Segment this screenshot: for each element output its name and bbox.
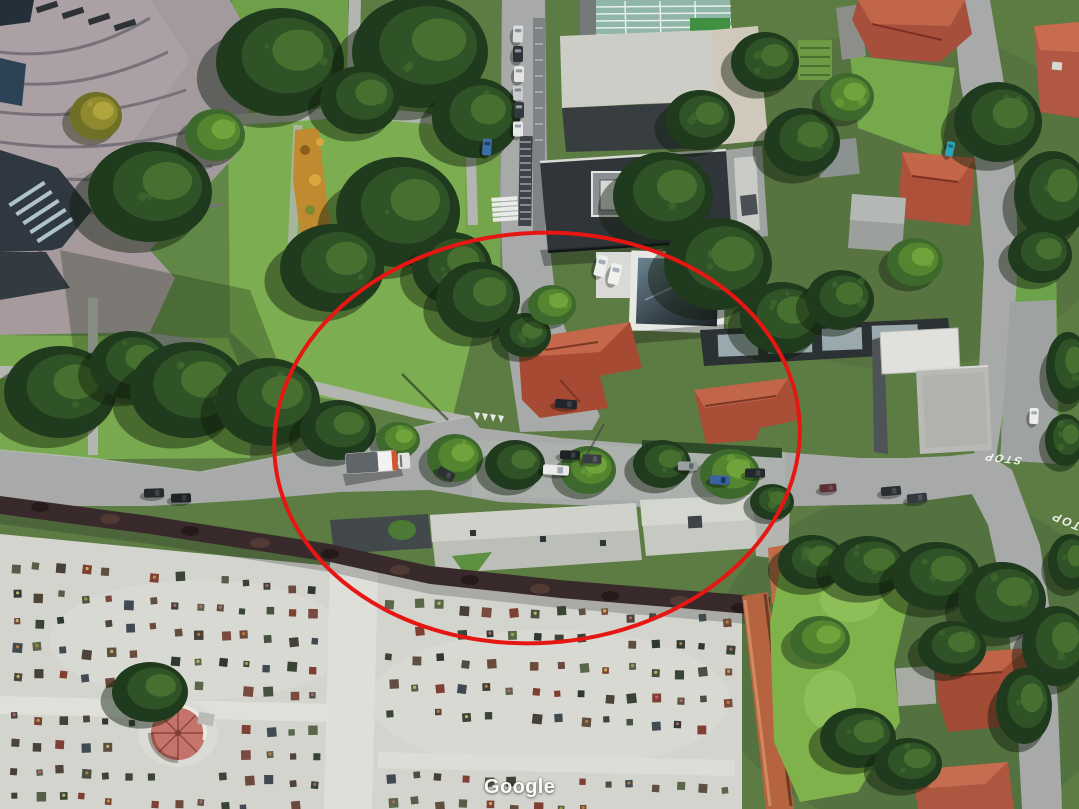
grave: [130, 650, 138, 658]
grave: [171, 602, 179, 610]
grave: [11, 739, 20, 748]
grave: [194, 631, 204, 641]
grave: [34, 717, 42, 725]
grave: [554, 690, 561, 697]
grave: [11, 793, 17, 799]
grave: [532, 714, 543, 725]
grave: [509, 608, 519, 618]
grave: [219, 658, 228, 667]
grave: [652, 721, 661, 730]
grave: [626, 693, 637, 704]
grave: [698, 614, 706, 622]
grave: [262, 665, 270, 673]
grave: [677, 782, 685, 790]
grave: [267, 607, 275, 615]
grave: [264, 635, 272, 643]
grave: [81, 650, 92, 661]
grave: [308, 586, 316, 594]
grave: [487, 800, 495, 808]
grave: [151, 801, 159, 809]
grave: [37, 792, 47, 802]
grave: [411, 684, 418, 691]
grave: [221, 576, 229, 584]
grave: [435, 709, 442, 716]
grave: [677, 698, 684, 705]
grave: [82, 596, 90, 604]
grave: [389, 679, 399, 689]
grave: [457, 684, 467, 694]
grave: [12, 564, 21, 573]
grave: [311, 781, 319, 789]
grave: [55, 765, 64, 774]
grave: [580, 663, 590, 673]
grave: [243, 661, 250, 668]
grave: [481, 607, 492, 618]
grave: [534, 633, 542, 641]
grave: [126, 624, 135, 633]
grave: [105, 798, 112, 805]
grave: [59, 671, 67, 679]
grave: [459, 606, 469, 616]
facade-strip: [533, 18, 545, 233]
grave: [291, 801, 301, 809]
grave: [33, 743, 42, 752]
stage-structure: [0, 0, 34, 26]
grave: [287, 661, 297, 671]
aerial-imagery: [0, 0, 1079, 809]
grave: [36, 769, 43, 776]
grave: [242, 725, 251, 734]
grave: [628, 641, 636, 649]
grave: [386, 774, 396, 784]
grave: [509, 805, 518, 809]
grave: [626, 719, 633, 726]
grave: [55, 740, 64, 749]
grave: [578, 690, 585, 697]
grave: [434, 600, 443, 609]
grave: [606, 781, 612, 787]
grave: [461, 660, 470, 669]
grave: [532, 688, 540, 696]
grave: [217, 604, 224, 611]
grave: [83, 715, 90, 722]
grave: [148, 773, 155, 780]
grave: [487, 659, 497, 669]
grave: [385, 653, 392, 660]
grave: [263, 583, 270, 590]
grave: [12, 643, 23, 654]
grave: [602, 667, 609, 674]
grave: [60, 792, 68, 800]
grave: [674, 721, 682, 729]
grave: [557, 606, 567, 616]
grave: [436, 653, 444, 661]
grave: [56, 563, 66, 573]
grave: [605, 695, 614, 704]
grave: [721, 787, 728, 794]
grave: [462, 775, 469, 782]
grave: [57, 617, 64, 624]
grave: [124, 600, 134, 610]
grave: [266, 751, 273, 758]
grave: [581, 717, 591, 727]
grave: [14, 590, 22, 598]
grave: [311, 638, 318, 645]
grave: [243, 580, 250, 587]
grave: [482, 683, 490, 691]
grave: [221, 802, 230, 809]
grave: [14, 673, 23, 682]
grave: [601, 608, 608, 615]
grave: [59, 646, 66, 653]
grave: [580, 805, 587, 809]
grave: [290, 780, 297, 787]
grave: [485, 712, 492, 719]
grave: [506, 777, 516, 787]
grave: [32, 642, 41, 651]
grave: [629, 663, 636, 670]
grave: [289, 609, 296, 616]
grave: [105, 620, 112, 627]
grave: [652, 640, 661, 649]
grave: [700, 695, 707, 702]
grave: [652, 693, 661, 702]
grave: [698, 643, 705, 650]
grave: [698, 784, 707, 793]
grave: [288, 585, 296, 593]
grave: [239, 630, 248, 639]
grave: [222, 631, 231, 640]
grave: [197, 799, 204, 806]
grave: [150, 573, 160, 583]
grave: [241, 750, 251, 760]
grave: [176, 571, 186, 581]
grave: [171, 656, 181, 666]
grave: [435, 801, 445, 809]
grave: [308, 609, 318, 619]
grave: [290, 753, 296, 759]
grave: [485, 777, 495, 787]
grave: [652, 669, 660, 677]
grave: [267, 727, 277, 737]
grave: [81, 674, 90, 683]
grave: [82, 769, 92, 779]
grave: [677, 640, 686, 649]
bike-racks: [518, 136, 533, 226]
grave: [103, 743, 112, 752]
grave: [35, 620, 44, 629]
grave: [309, 692, 315, 698]
grave: [724, 699, 733, 708]
grave: [34, 594, 44, 604]
grave: [534, 802, 544, 809]
grave: [309, 667, 317, 675]
grave: [505, 687, 513, 695]
grave: [263, 686, 273, 696]
grave: [288, 729, 295, 736]
grave: [531, 609, 540, 618]
grave: [435, 684, 445, 694]
grave: [554, 714, 563, 723]
grave: [389, 798, 399, 808]
grave: [195, 681, 204, 690]
grave: [625, 780, 633, 788]
grave: [558, 662, 565, 669]
grave: [245, 775, 255, 785]
grave: [58, 590, 65, 597]
grave: [486, 630, 493, 637]
grave: [150, 597, 158, 605]
grave: [243, 686, 254, 697]
grave: [462, 713, 471, 722]
grave: [174, 628, 182, 636]
grave: [530, 662, 539, 671]
grave: [603, 716, 610, 723]
grave: [698, 667, 708, 677]
grave: [10, 768, 17, 775]
grave: [579, 779, 585, 785]
grave: [125, 773, 132, 780]
crosswalk: [491, 196, 519, 222]
grave: [289, 637, 299, 647]
grave: [697, 725, 706, 734]
grave: [105, 595, 112, 602]
grave: [291, 692, 300, 701]
grave: [264, 775, 273, 784]
grave: [59, 716, 68, 725]
satellite-map-canvas[interactable]: STOP STOP Google: [0, 0, 1079, 809]
grave: [508, 631, 517, 640]
grave: [652, 785, 660, 793]
grave: [34, 669, 43, 678]
grave: [313, 753, 320, 760]
grave: [675, 670, 684, 679]
grave: [308, 725, 318, 735]
grave: [197, 604, 204, 611]
grave: [415, 598, 425, 608]
grave: [558, 806, 565, 809]
grave: [78, 793, 85, 800]
grave: [107, 647, 117, 657]
grave: [149, 623, 156, 630]
grave: [82, 564, 92, 574]
grave: [11, 712, 18, 719]
grave: [413, 771, 420, 778]
grave: [102, 718, 108, 724]
grave: [31, 562, 39, 570]
grave: [410, 796, 418, 804]
grave: [627, 615, 635, 623]
grave: [102, 772, 109, 779]
grave: [219, 772, 227, 780]
grave: [194, 658, 201, 665]
grave: [459, 799, 468, 808]
grave: [723, 618, 732, 627]
grave: [81, 743, 91, 753]
grave: [412, 656, 421, 665]
grave: [14, 618, 20, 624]
grave: [433, 773, 441, 781]
grave: [726, 645, 736, 655]
grave: [239, 608, 246, 615]
grave: [725, 669, 732, 676]
grave: [579, 608, 586, 615]
grave: [240, 804, 247, 809]
grave: [175, 800, 183, 808]
stage-panel: [0, 58, 26, 106]
grave: [101, 568, 110, 577]
grave: [386, 710, 393, 717]
